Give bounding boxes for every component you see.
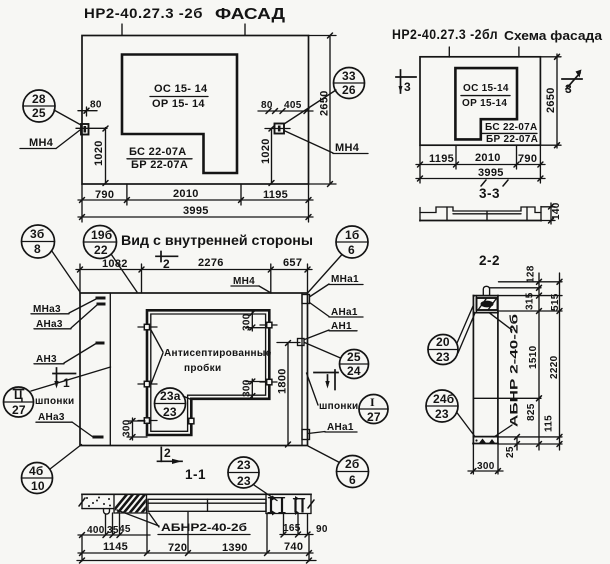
svg-text:300: 300 [242,313,253,331]
svg-text:Антисептированные: Антисептированные [164,348,272,359]
svg-text:8: 8 [34,242,41,256]
svg-text:300: 300 [242,379,253,397]
svg-text:128: 128 [526,265,537,283]
svg-text:3995: 3995 [478,167,504,179]
svg-text:1390: 1390 [222,542,248,554]
svg-text:27: 27 [12,403,26,417]
svg-text:1145: 1145 [103,541,128,553]
svg-text:23: 23 [237,474,251,488]
svg-text:ОС 15- 14: ОС 15- 14 [154,83,208,95]
svg-text:2010: 2010 [475,152,501,164]
svg-text:2276: 2276 [198,257,224,269]
svg-text:825: 825 [526,403,537,421]
svg-text:2650: 2650 [545,87,557,113]
svg-text:25: 25 [347,350,361,364]
svg-text:80: 80 [90,100,102,111]
svg-text:24б: 24б [433,392,454,406]
svg-text:2650: 2650 [319,90,331,116]
svg-text:1020: 1020 [260,138,272,164]
svg-text:АНа3: АНа3 [38,412,65,423]
svg-text:115: 115 [544,415,555,432]
svg-text:20: 20 [436,335,450,349]
svg-text:2220: 2220 [549,355,560,379]
svg-text:23а: 23а [160,389,181,403]
svg-text:10: 10 [31,479,45,493]
svg-text:ОС 15-14: ОС 15-14 [463,83,509,94]
svg-text:Вид с внутренней стороны: Вид с внутренней стороны [121,232,313,248]
svg-text:515: 515 [550,293,561,311]
svg-text:2: 2 [163,257,170,271]
svg-text:НР2-40.27.3 -2б: НР2-40.27.3 -2б [84,6,203,21]
svg-text:НР2-40.27.3 -2бл: НР2-40.27.3 -2бл [392,27,498,42]
svg-text:1: 1 [63,376,70,390]
svg-text:2: 2 [164,446,171,460]
svg-text:300: 300 [477,461,495,472]
svg-text:27: 27 [367,410,381,424]
svg-text:3б: 3б [30,227,45,241]
svg-text:23: 23 [436,350,450,364]
svg-text:90: 90 [316,524,328,535]
svg-text:1б: 1б [345,228,360,242]
svg-text:6: 6 [349,473,356,487]
svg-text:АБНР2-40-2б: АБНР2-40-2б [161,522,247,534]
svg-text:АБНР 2-40-2б: АБНР 2-40-2б [509,314,521,427]
svg-text:19б: 19б [91,228,112,242]
svg-text:140: 140 [551,202,562,220]
svg-text:ОР 15-14: ОР 15-14 [462,98,507,109]
svg-text:720: 720 [168,542,187,554]
svg-text:740: 740 [284,541,303,553]
svg-text:3: 3 [565,82,572,96]
svg-text:790: 790 [518,153,537,165]
svg-text:2010: 2010 [173,188,199,200]
svg-text:1800: 1800 [277,368,289,394]
svg-text:26: 26 [342,83,356,97]
svg-text:3-3: 3-3 [479,186,500,201]
svg-text:405: 405 [284,100,302,111]
svg-text:790: 790 [95,189,114,201]
svg-text:БС 22-07А: БС 22-07А [129,146,187,158]
svg-text:2-2: 2-2 [479,253,500,268]
svg-text:657: 657 [283,257,302,269]
svg-text:шпонки: шпонки [319,401,358,412]
svg-text:165: 165 [283,523,301,534]
svg-text:шпонки: шпонки [35,396,74,407]
svg-text:3995: 3995 [183,205,209,217]
svg-text:пробки: пробки [184,362,221,374]
svg-text:МН4: МН4 [29,137,54,149]
svg-text:ОР 15- 14: ОР 15- 14 [152,98,205,110]
svg-text:45: 45 [119,524,131,535]
svg-text:300: 300 [122,419,133,437]
svg-text:3: 3 [404,80,411,94]
svg-text:Схема фасада: Схема фасада [504,28,603,43]
svg-text:1195: 1195 [429,153,454,165]
svg-text:315: 315 [525,292,536,310]
svg-text:1195: 1195 [263,189,288,201]
svg-text:I: I [370,395,375,409]
svg-text:МНа1: МНа1 [331,274,359,285]
svg-text:23: 23 [163,405,177,419]
svg-text:2б: 2б [345,457,360,471]
svg-text:35: 35 [107,525,119,536]
svg-text:БС 22-07А: БС 22-07А [485,122,538,133]
svg-text:25: 25 [32,106,46,120]
svg-text:БР 22-07А: БР 22-07А [486,134,538,145]
svg-text:23: 23 [237,458,251,472]
svg-text:6: 6 [348,243,355,257]
svg-text:22: 22 [94,243,108,257]
svg-text:400: 400 [87,525,105,536]
svg-text:1020: 1020 [93,140,105,166]
svg-text:1510: 1510 [528,345,539,369]
svg-text:БР 22-07А: БР 22-07А [131,159,188,171]
svg-text:МН4: МН4 [335,142,360,154]
svg-text:80: 80 [261,100,273,111]
svg-text:23: 23 [435,407,449,421]
svg-text:4б: 4б [29,464,44,478]
svg-text:24: 24 [347,364,361,378]
svg-text:33: 33 [342,69,356,83]
svg-text:28: 28 [32,92,46,106]
svg-text:ФАСАД: ФАСАД [215,6,286,23]
svg-text:25: 25 [505,446,516,458]
svg-text:1-1: 1-1 [185,467,206,482]
